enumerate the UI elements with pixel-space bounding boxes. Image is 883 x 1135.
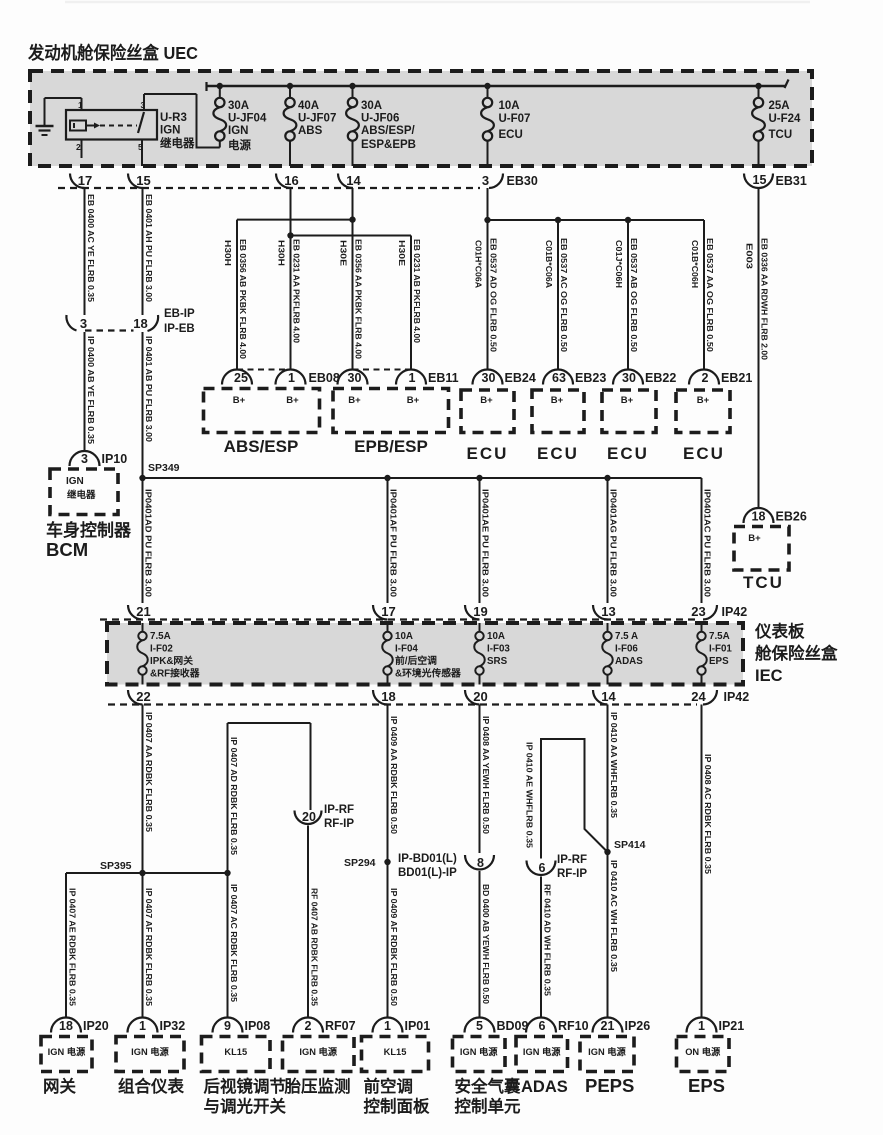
svg-text:U-JF07: U-JF07 [298,113,336,125]
svg-text:3: 3 [81,452,88,466]
svg-text:ABS: ABS [298,125,323,137]
svg-text:1: 1 [139,1019,146,1033]
svg-text:30A: 30A [361,100,382,112]
svg-text:仪表板: 仪表板 [754,621,805,641]
svg-text:B+: B+ [480,395,493,406]
svg-text:C01B*C06H: C01B*C06H [690,240,699,288]
svg-text:I-F02: I-F02 [150,644,173,655]
svg-text:6: 6 [539,861,546,875]
svg-text:EB 0356 AA PKBK FLRB 4.00: EB 0356 AA PKBK FLRB 4.00 [354,239,363,359]
svg-text:13: 13 [601,604,615,619]
svg-text:ADAS: ADAS [521,1078,568,1096]
svg-text:&环境光传感器: &环境光传感器 [395,667,461,680]
svg-text:与调光开关: 与调光开关 [204,1096,287,1116]
svg-text:I-F04: I-F04 [395,644,418,655]
svg-text:IP 0410 AA WHFLRB 0.35: IP 0410 AA WHFLRB 0.35 [609,712,618,818]
svg-text:18: 18 [133,316,147,331]
svg-text:IGN: IGN [160,125,180,137]
svg-text:20: 20 [473,689,487,704]
svg-text:63: 63 [552,371,566,385]
svg-text:IP-RF: IP-RF [557,854,587,866]
svg-text:后视镜调节: 后视镜调节 [204,1076,287,1096]
svg-text:BCM: BCM [46,539,88,560]
svg-text:1: 1 [78,100,83,110]
svg-text:RF 0410 AD WH FLRB 0.35: RF 0410 AD WH FLRB 0.35 [543,884,552,996]
svg-text:控制面板: 控制面板 [364,1096,431,1116]
svg-text:发动机舱保险丝盒 UEC: 发动机舱保险丝盒 UEC [27,43,198,63]
svg-text:30: 30 [482,371,496,385]
svg-text:EB 0231 AB PKFLRB 4.00: EB 0231 AB PKFLRB 4.00 [412,239,421,343]
svg-text:U-F24: U-F24 [769,113,802,125]
svg-text:B+: B+ [348,395,361,406]
svg-text:RF-IP: RF-IP [557,868,587,880]
svg-text:EB 0356 AB PKBK FLRB 4.00: EB 0356 AB PKBK FLRB 4.00 [238,239,247,359]
svg-text:ECU: ECU [683,444,725,463]
svg-text:IP42: IP42 [724,690,750,704]
svg-text:C01H*C06A: C01H*C06A [474,240,483,288]
svg-text:5: 5 [138,142,143,152]
svg-text:TCU: TCU [743,573,784,592]
svg-text:EB 0537 AA OG FLRB 0.50: EB 0537 AA OG FLRB 0.50 [705,238,714,352]
svg-text:IGN 电源: IGN 电源 [460,1046,498,1057]
svg-text:10A: 10A [499,100,520,112]
svg-text:17: 17 [78,173,92,188]
svg-text:I-F03: I-F03 [487,644,510,655]
svg-text:IP26: IP26 [625,1019,651,1033]
svg-text:EB-IP: EB-IP [164,308,195,320]
svg-text:前/后空调: 前/后空调 [395,654,437,667]
svg-text:3: 3 [482,173,489,188]
svg-text:ON 电源: ON 电源 [685,1046,721,1057]
svg-text:&RF接收器: &RF接收器 [150,667,200,680]
svg-text:2: 2 [76,142,81,152]
svg-text:EB 0400 AC YE FLRB 0.35: EB 0400 AC YE FLRB 0.35 [86,194,95,302]
svg-text:EB 0537 AB OG FLRB 0.50: EB 0537 AB OG FLRB 0.50 [629,238,638,352]
svg-text:继电器: 继电器 [160,136,195,150]
svg-text:3: 3 [80,316,87,331]
svg-text:IP0401AE PU FLRB 3.00: IP0401AE PU FLRB 3.00 [481,489,490,598]
svg-text:E003: E003 [745,243,754,270]
svg-text:3: 3 [141,100,146,110]
svg-text:30A: 30A [228,100,249,112]
svg-text:IP 0408 AC RDBK FLRB 0.35: IP 0408 AC RDBK FLRB 0.35 [703,754,712,874]
svg-text:组合仪表: 组合仪表 [118,1076,185,1096]
svg-text:1: 1 [288,371,295,385]
svg-text:控制单元: 控制单元 [455,1096,522,1116]
svg-text:IP-RF: IP-RF [324,804,354,816]
svg-text:IP01: IP01 [405,1019,431,1033]
svg-text:15: 15 [136,173,150,188]
svg-text:U-JF04: U-JF04 [228,113,267,125]
svg-text:I-F01: I-F01 [709,644,732,655]
svg-text:H30E: H30E [339,240,348,267]
svg-text:1: 1 [409,371,416,385]
svg-text:IP-BD01(L): IP-BD01(L) [398,853,457,865]
svg-text:ECU: ECU [467,444,509,463]
svg-text:H30H: H30H [277,240,286,266]
svg-text:ESP&EPB: ESP&EPB [361,139,416,151]
svg-text:8: 8 [477,856,484,870]
svg-text:23: 23 [691,604,705,619]
svg-text:17: 17 [381,604,395,619]
svg-text:IP0401AD PU FLRB 3.00: IP0401AD PU FLRB 3.00 [144,489,153,597]
svg-text:2: 2 [305,1019,312,1033]
svg-text:RF10: RF10 [558,1019,589,1033]
svg-text:IP 0409 AA RDBK FLRB 0.50: IP 0409 AA RDBK FLRB 0.50 [389,716,398,834]
svg-text:KL15: KL15 [224,1047,247,1057]
svg-text:21: 21 [601,1019,615,1033]
svg-text:15: 15 [753,173,767,187]
svg-text:SP349: SP349 [148,462,180,474]
svg-text:EB11: EB11 [428,371,459,385]
svg-text:IP 0407 AC RDBK FLRB 0.35: IP 0407 AC RDBK FLRB 0.35 [229,884,238,1002]
svg-text:胎压监测: 胎压监测 [285,1076,351,1096]
svg-text:IP 0407 AF RDBK FLRB 0.35: IP 0407 AF RDBK FLRB 0.35 [144,888,153,1006]
svg-text:车身控制器: 车身控制器 [46,520,132,540]
svg-text:EB 0231 AA PKFLRB 4.00: EB 0231 AA PKFLRB 4.00 [292,239,301,343]
svg-text:IP08: IP08 [245,1019,271,1033]
svg-text:继电器: 继电器 [67,489,96,501]
svg-text:30: 30 [622,371,636,385]
svg-text:B+: B+ [233,395,246,406]
svg-text:IGN: IGN [66,476,84,487]
svg-text:B+: B+ [551,395,564,406]
svg-text:IP20: IP20 [83,1019,109,1033]
svg-text:7.5A: 7.5A [150,631,171,642]
svg-text:19: 19 [473,604,487,619]
svg-text:U-JF06: U-JF06 [361,113,399,125]
svg-text:网关: 网关 [43,1076,77,1096]
svg-text:IP 0407 AD RDBK FLRB 0.35: IP 0407 AD RDBK FLRB 0.35 [229,737,238,855]
svg-text:30: 30 [348,371,362,385]
svg-text:IP 0401 AB PU FLRB 3.00: IP 0401 AB PU FLRB 3.00 [144,336,153,442]
svg-text:18: 18 [381,689,395,704]
svg-text:24: 24 [691,689,706,704]
svg-text:25: 25 [234,371,248,385]
svg-text:IGN 电源: IGN 电源 [131,1046,169,1057]
svg-text:SP395: SP395 [100,860,132,872]
svg-text:IP0401AF PU FLRB 3.00: IP0401AF PU FLRB 3.00 [389,489,398,598]
svg-text:IPK&网关: IPK&网关 [150,654,193,667]
svg-text:RF07: RF07 [325,1019,356,1033]
svg-text:18: 18 [752,510,766,524]
svg-text:2: 2 [702,371,709,385]
svg-text:H30E: H30E [397,240,406,267]
svg-text:14: 14 [601,689,616,704]
svg-text:EB 0537 AC OG FLRB 0.50: EB 0537 AC OG FLRB 0.50 [559,238,568,352]
svg-text:PEPS: PEPS [585,1075,634,1096]
svg-text:C01B*C06A: C01B*C06A [544,240,553,288]
svg-text:EB21: EB21 [721,371,752,385]
svg-text:B+: B+ [621,395,634,406]
svg-text:舱保险丝盒: 舱保险丝盒 [755,643,838,663]
svg-text:EB26: EB26 [776,510,807,524]
svg-text:EB08: EB08 [309,371,340,385]
svg-text:IP 0407 AA RDBK FLRB 0.35: IP 0407 AA RDBK FLRB 0.35 [144,712,153,832]
svg-text:EB31: EB31 [776,174,807,188]
svg-text:BD09: BD09 [497,1019,529,1033]
svg-text:IP21: IP21 [719,1019,745,1033]
svg-text:6: 6 [539,1019,546,1033]
svg-text:EPB/ESP: EPB/ESP [354,437,428,456]
svg-text:I-F06: I-F06 [615,644,638,655]
svg-text:14: 14 [346,173,361,188]
svg-text:ECU: ECU [499,129,523,141]
svg-text:C01J*C06H: C01J*C06H [614,240,623,288]
svg-text:IGN 电源: IGN 电源 [299,1046,337,1057]
svg-text:10A: 10A [487,631,505,642]
svg-text:25A: 25A [769,100,790,112]
svg-text:SRS: SRS [487,656,508,667]
svg-text:KL15: KL15 [384,1047,407,1057]
svg-text:电源: 电源 [228,138,251,152]
svg-text:IP0401AC PU FLRB 3.00: IP0401AC PU FLRB 3.00 [703,489,712,597]
svg-text:IP32: IP32 [160,1019,186,1033]
svg-text:1: 1 [698,1019,705,1033]
svg-text:EB23: EB23 [575,371,606,385]
svg-text:22: 22 [136,689,150,704]
svg-text:IP 0408 AA YEWH FLRB 0.50: IP 0408 AA YEWH FLRB 0.50 [481,716,490,834]
svg-text:1: 1 [384,1019,391,1033]
svg-text:ABS/ESP: ABS/ESP [224,437,299,456]
svg-text:IP 0410 AC WH FLRB 0.35: IP 0410 AC WH FLRB 0.35 [609,860,618,972]
svg-text:EB 0336 AA RDWH FLRB 2.00: EB 0336 AA RDWH FLRB 2.00 [760,238,769,360]
svg-text:IGN: IGN [228,125,248,137]
svg-text:B+: B+ [697,395,710,406]
svg-text:IP-EB: IP-EB [164,323,195,335]
svg-text:U-R3: U-R3 [160,112,187,124]
svg-text:IGN 电源: IGN 电源 [48,1046,86,1057]
svg-text:IP 0410 AE WHFLRB 0.35: IP 0410 AE WHFLRB 0.35 [525,742,534,848]
svg-text:B+: B+ [286,395,299,406]
svg-text:H30H: H30H [223,240,232,266]
svg-text:40A: 40A [298,100,319,112]
svg-text:IP 0400 AB YE FLRB 0.35: IP 0400 AB YE FLRB 0.35 [86,336,95,444]
svg-text:ABS/ESP/: ABS/ESP/ [361,125,415,137]
svg-text:B+: B+ [748,533,761,544]
svg-text:EB 0537 AD OG FLRB 0.50: EB 0537 AD OG FLRB 0.50 [489,238,498,352]
svg-text:ECU: ECU [607,444,649,463]
svg-text:21: 21 [136,604,150,619]
svg-text:IGN 电源: IGN 电源 [588,1046,626,1057]
svg-text:EB22: EB22 [645,371,676,385]
svg-text:BD01(L)-IP: BD01(L)-IP [398,867,457,879]
svg-text:16: 16 [284,173,298,188]
svg-text:20: 20 [302,810,316,824]
svg-text:10A: 10A [395,631,413,642]
svg-text:IP 0407 AE RDBK FLRB 0.35: IP 0407 AE RDBK FLRB 0.35 [68,888,77,1006]
svg-text:EPS: EPS [709,656,729,667]
svg-text:B+: B+ [407,395,420,406]
svg-text:U-F07: U-F07 [499,113,531,125]
svg-text:EB 0401 AH PU FLRB 3.00: EB 0401 AH PU FLRB 3.00 [144,194,153,302]
svg-text:IP42: IP42 [722,605,748,619]
svg-text:IP 0409 AF RDBK FLRB 0.50: IP 0409 AF RDBK FLRB 0.50 [389,888,398,1006]
svg-text:5: 5 [476,1019,483,1033]
svg-text:IEC: IEC [755,667,783,685]
svg-text:7.5A: 7.5A [709,631,730,642]
svg-text:RF-IP: RF-IP [324,818,354,830]
svg-text:ECU: ECU [537,444,579,463]
svg-text:EPS: EPS [688,1075,725,1096]
svg-text:SP414: SP414 [614,839,646,851]
svg-text:BD 0400 AB YEWH FLRB 0.50: BD 0400 AB YEWH FLRB 0.50 [481,884,490,1004]
svg-text:IP0401AG PU FLRB 3.00: IP0401AG PU FLRB 3.00 [609,489,618,597]
svg-text:18: 18 [59,1019,73,1033]
svg-text:IGN 电源: IGN 电源 [523,1046,561,1057]
svg-text:7.5 A: 7.5 A [615,631,638,642]
svg-text:EB30: EB30 [507,174,538,188]
svg-text:SP294: SP294 [344,857,376,869]
svg-text:EB24: EB24 [505,371,536,385]
svg-text:IP10: IP10 [102,452,128,466]
svg-text:TCU: TCU [769,129,793,141]
svg-text:9: 9 [224,1019,231,1033]
svg-text:安全气囊: 安全气囊 [455,1076,522,1096]
svg-text:RF 0407 AB RDBK FLRB 0.35: RF 0407 AB RDBK FLRB 0.35 [310,888,319,1006]
svg-text:前空调: 前空调 [364,1076,414,1096]
svg-text:ADAS: ADAS [615,656,643,667]
